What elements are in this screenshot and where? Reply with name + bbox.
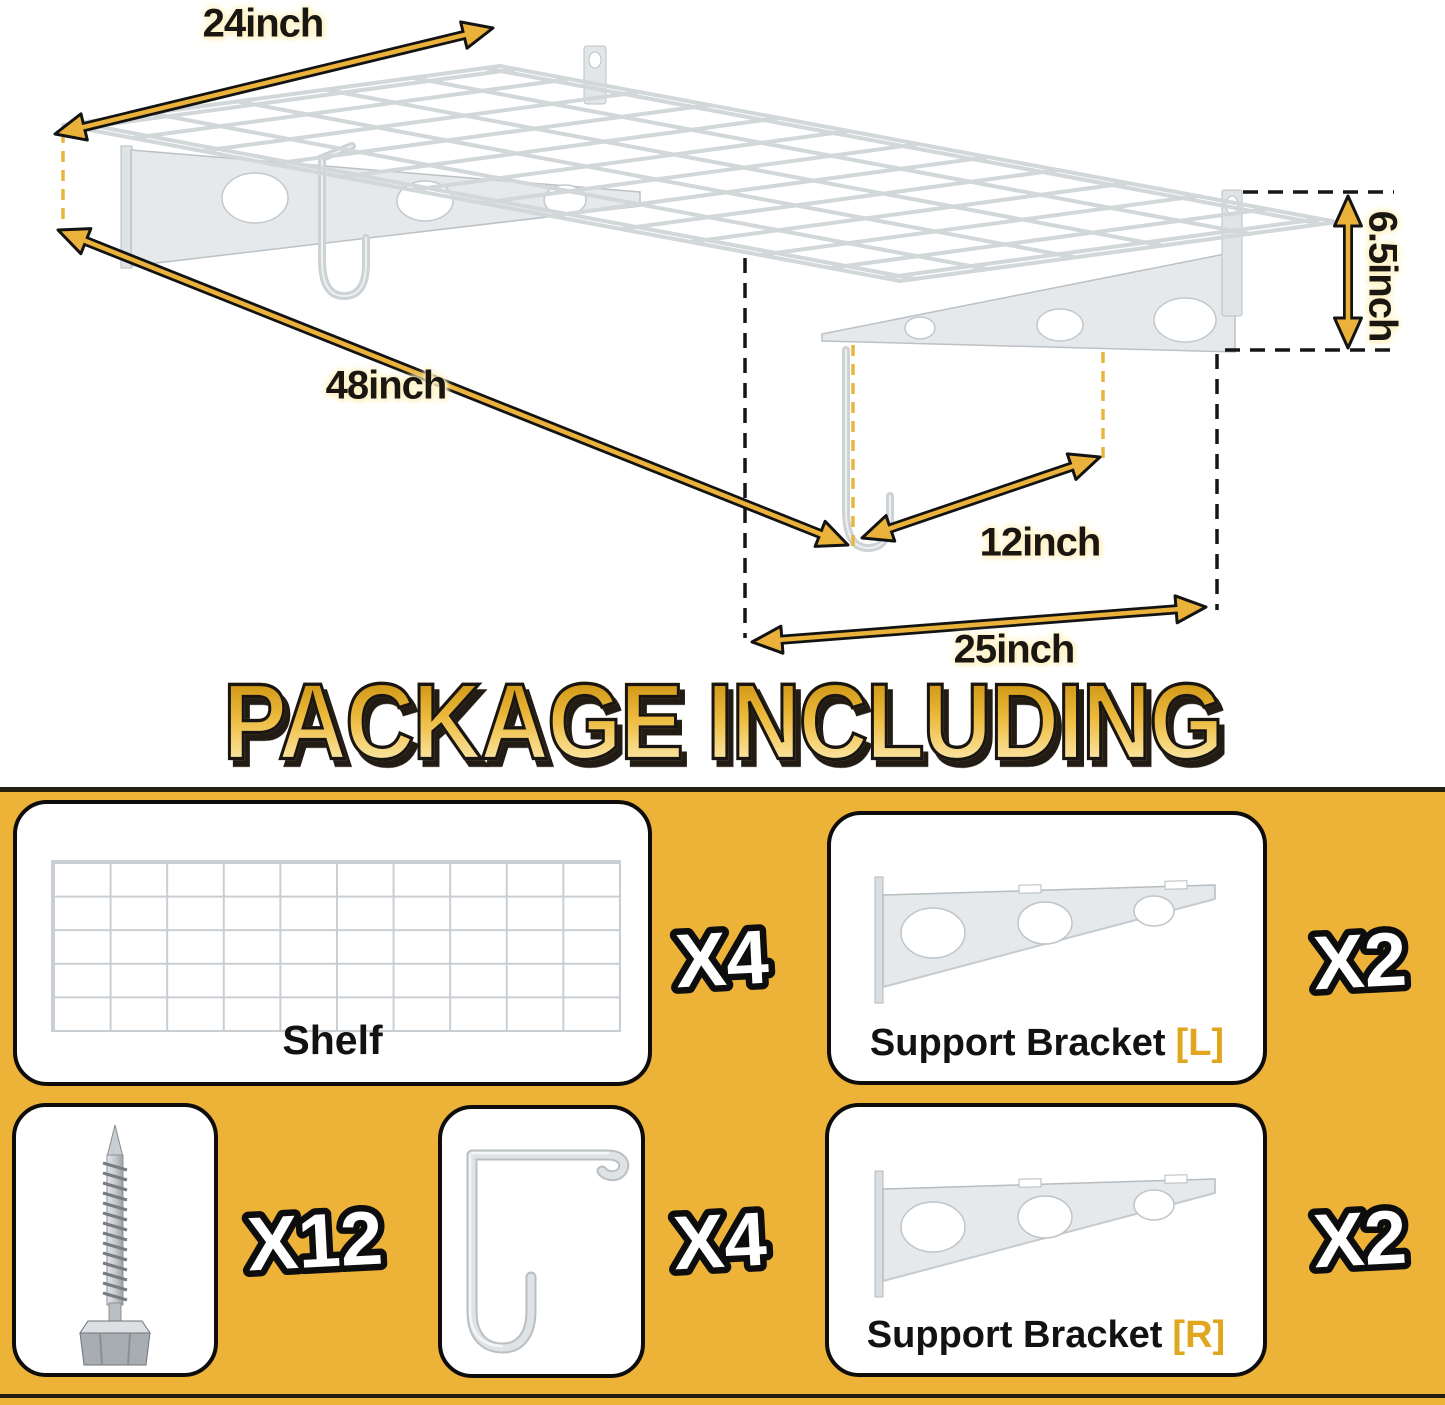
support-bracket-left-icon [121,146,640,268]
count-bracket-l: X2 [1250,907,1445,1017]
dimension-label-24inch: 24inch [203,2,324,47]
count-bracket-r: X2 [1250,1185,1445,1295]
section-title: PACKAGE INCLUDING [0,668,1445,778]
wire-grid-shelf-icon [51,860,621,1032]
support-bracket-right-label: Support Bracket[R] [829,1314,1263,1357]
count-screws: X12 [205,1187,425,1297]
svg-text:X4: X4 [671,1197,768,1287]
panel-bottom-divider [0,1394,1445,1398]
shelf-dimension-diagram [0,0,1445,672]
count-shelf: X4 [612,905,832,1015]
screw-icon [16,1107,214,1373]
support-bracket-icon [869,1155,1233,1319]
svg-text:X4: X4 [673,915,770,1005]
shelf-card: Shelf [13,800,652,1086]
support-bracket-icon [869,861,1233,1025]
support-bracket-left-label: Support Bracket[L] [831,1022,1263,1065]
count-hooks: X4 [610,1187,830,1297]
support-bracket-right-card: Support Bracket[R] [825,1103,1267,1377]
dimension-label-12inch: 12inch [980,521,1101,566]
product-infographic: { "title": "PACKAGE INCLUDING", "diagram… [0,0,1445,1405]
svg-text:X12: X12 [245,1196,384,1288]
dimension-label-48inch: 48inch [326,364,447,409]
screw-card [12,1103,218,1377]
svg-text:X2: X2 [1311,917,1408,1007]
dimension-label-6-5inch: 6.5inch [1360,211,1405,342]
shelf-label: Shelf [17,1017,648,1064]
support-bracket-left-card: Support Bracket[L] [827,811,1267,1085]
svg-text:X2: X2 [1311,1195,1408,1285]
